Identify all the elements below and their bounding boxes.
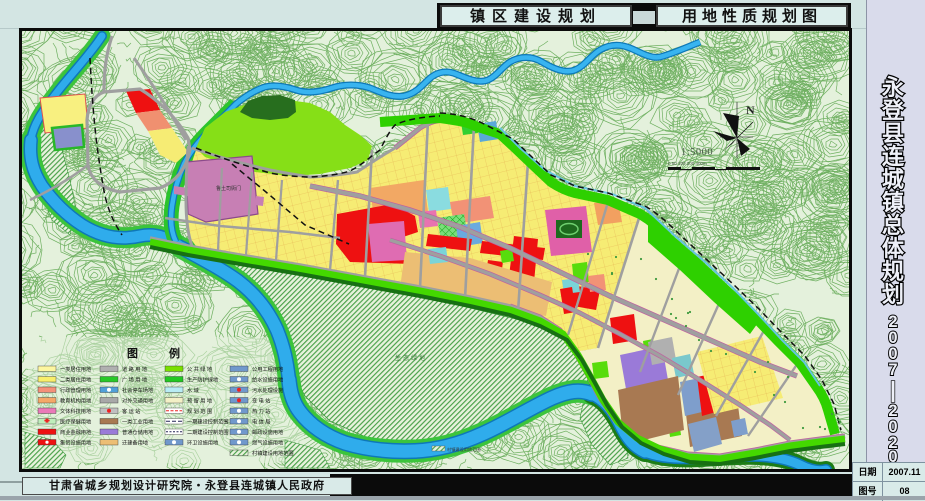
svg-text:二类居住用地: 二类居住用地 — [60, 376, 91, 384]
svg-text:7: 7 — [888, 361, 897, 379]
svg-text:村镇建设用地范围: 村镇建设用地范围 — [252, 449, 294, 457]
svg-text:0 50 100 200 400m: 0 50 100 200 400m — [668, 161, 707, 166]
svg-text:鲁土司衙门: 鲁土司衙门 — [216, 185, 241, 192]
svg-text:体: 体 — [882, 236, 905, 261]
svg-text:一期建设控制范围: 一期建设控制范围 — [187, 418, 229, 426]
svg-text:公 共 绿 地: 公 共 绿 地 — [187, 365, 212, 373]
svg-text:行政管理用地: 行政管理用地 — [60, 386, 91, 394]
svg-text:图 例: 图 例 — [127, 346, 194, 360]
svg-text:道 路 用 地: 道 路 用 地 — [122, 365, 147, 373]
svg-text:县: 县 — [882, 121, 904, 146]
svg-text:N: N — [746, 103, 755, 117]
svg-text:热 力 站: 热 力 站 — [252, 407, 270, 415]
svg-text:燃气设施用地: 燃气设施用地 — [252, 439, 283, 447]
svg-text:永: 永 — [882, 75, 904, 100]
svg-text:医疗保健用地: 医疗保健用地 — [60, 418, 91, 426]
svg-text:镇: 镇 — [882, 190, 904, 215]
svg-text:水 域: 水 域 — [187, 386, 199, 394]
svg-text:客 运 站: 客 运 站 — [122, 407, 140, 415]
svg-text:污水处理设施: 污水处理设施 — [252, 386, 283, 394]
svg-text:划: 划 — [882, 282, 904, 307]
svg-text:预 留 用 地: 预 留 用 地 — [187, 397, 212, 405]
svg-text:环卫设施用地: 环卫设施用地 — [187, 439, 218, 447]
svg-text:二期建设控制范围: 二期建设控制范围 — [187, 428, 229, 436]
svg-text:对外交通用地: 对外交通用地 — [122, 397, 153, 405]
svg-text:生态绿地: 生态绿地 — [395, 354, 427, 362]
svg-text:集贸设施用地: 集贸设施用地 — [60, 439, 91, 447]
svg-text:商业金融用地: 商业金融用地 — [60, 428, 91, 436]
svg-text:一类工业用地: 一类工业用地 — [122, 418, 153, 426]
svg-text:村镇建设用地范围: 村镇建设用地范围 — [447, 446, 481, 453]
svg-text:规: 规 — [882, 259, 904, 284]
svg-text:登: 登 — [881, 98, 905, 123]
svg-text:广 场 用 地: 广 场 用 地 — [122, 376, 147, 384]
svg-text:普通仓储用地: 普通仓储用地 — [122, 428, 153, 436]
svg-text:总: 总 — [882, 213, 904, 238]
svg-text:1:5000: 1:5000 — [681, 147, 713, 158]
svg-text:公用工程用地: 公用工程用地 — [252, 365, 283, 373]
svg-text:给水设施用地: 给水设施用地 — [252, 376, 283, 384]
svg-text:文体科技用地: 文体科技用地 — [60, 407, 91, 415]
svg-text:邮政设施用地: 邮政设施用地 — [252, 428, 283, 436]
svg-text:城: 城 — [882, 167, 904, 192]
svg-text:社会停车场地: 社会停车场地 — [122, 386, 153, 394]
svg-text:变 电 站: 变 电 站 — [252, 397, 270, 405]
svg-text:教育机构用地: 教育机构用地 — [60, 397, 91, 405]
svg-text:迁建备用地: 迁建备用地 — [122, 439, 148, 447]
svg-text:电 信 局: 电 信 局 — [252, 418, 270, 426]
svg-text:生产防护绿地: 生产防护绿地 — [187, 376, 218, 384]
svg-text:一类居住用地: 一类居住用地 — [60, 365, 91, 373]
svg-text:连: 连 — [882, 144, 905, 169]
svg-text:规 划 范 围: 规 划 范 围 — [187, 407, 212, 415]
